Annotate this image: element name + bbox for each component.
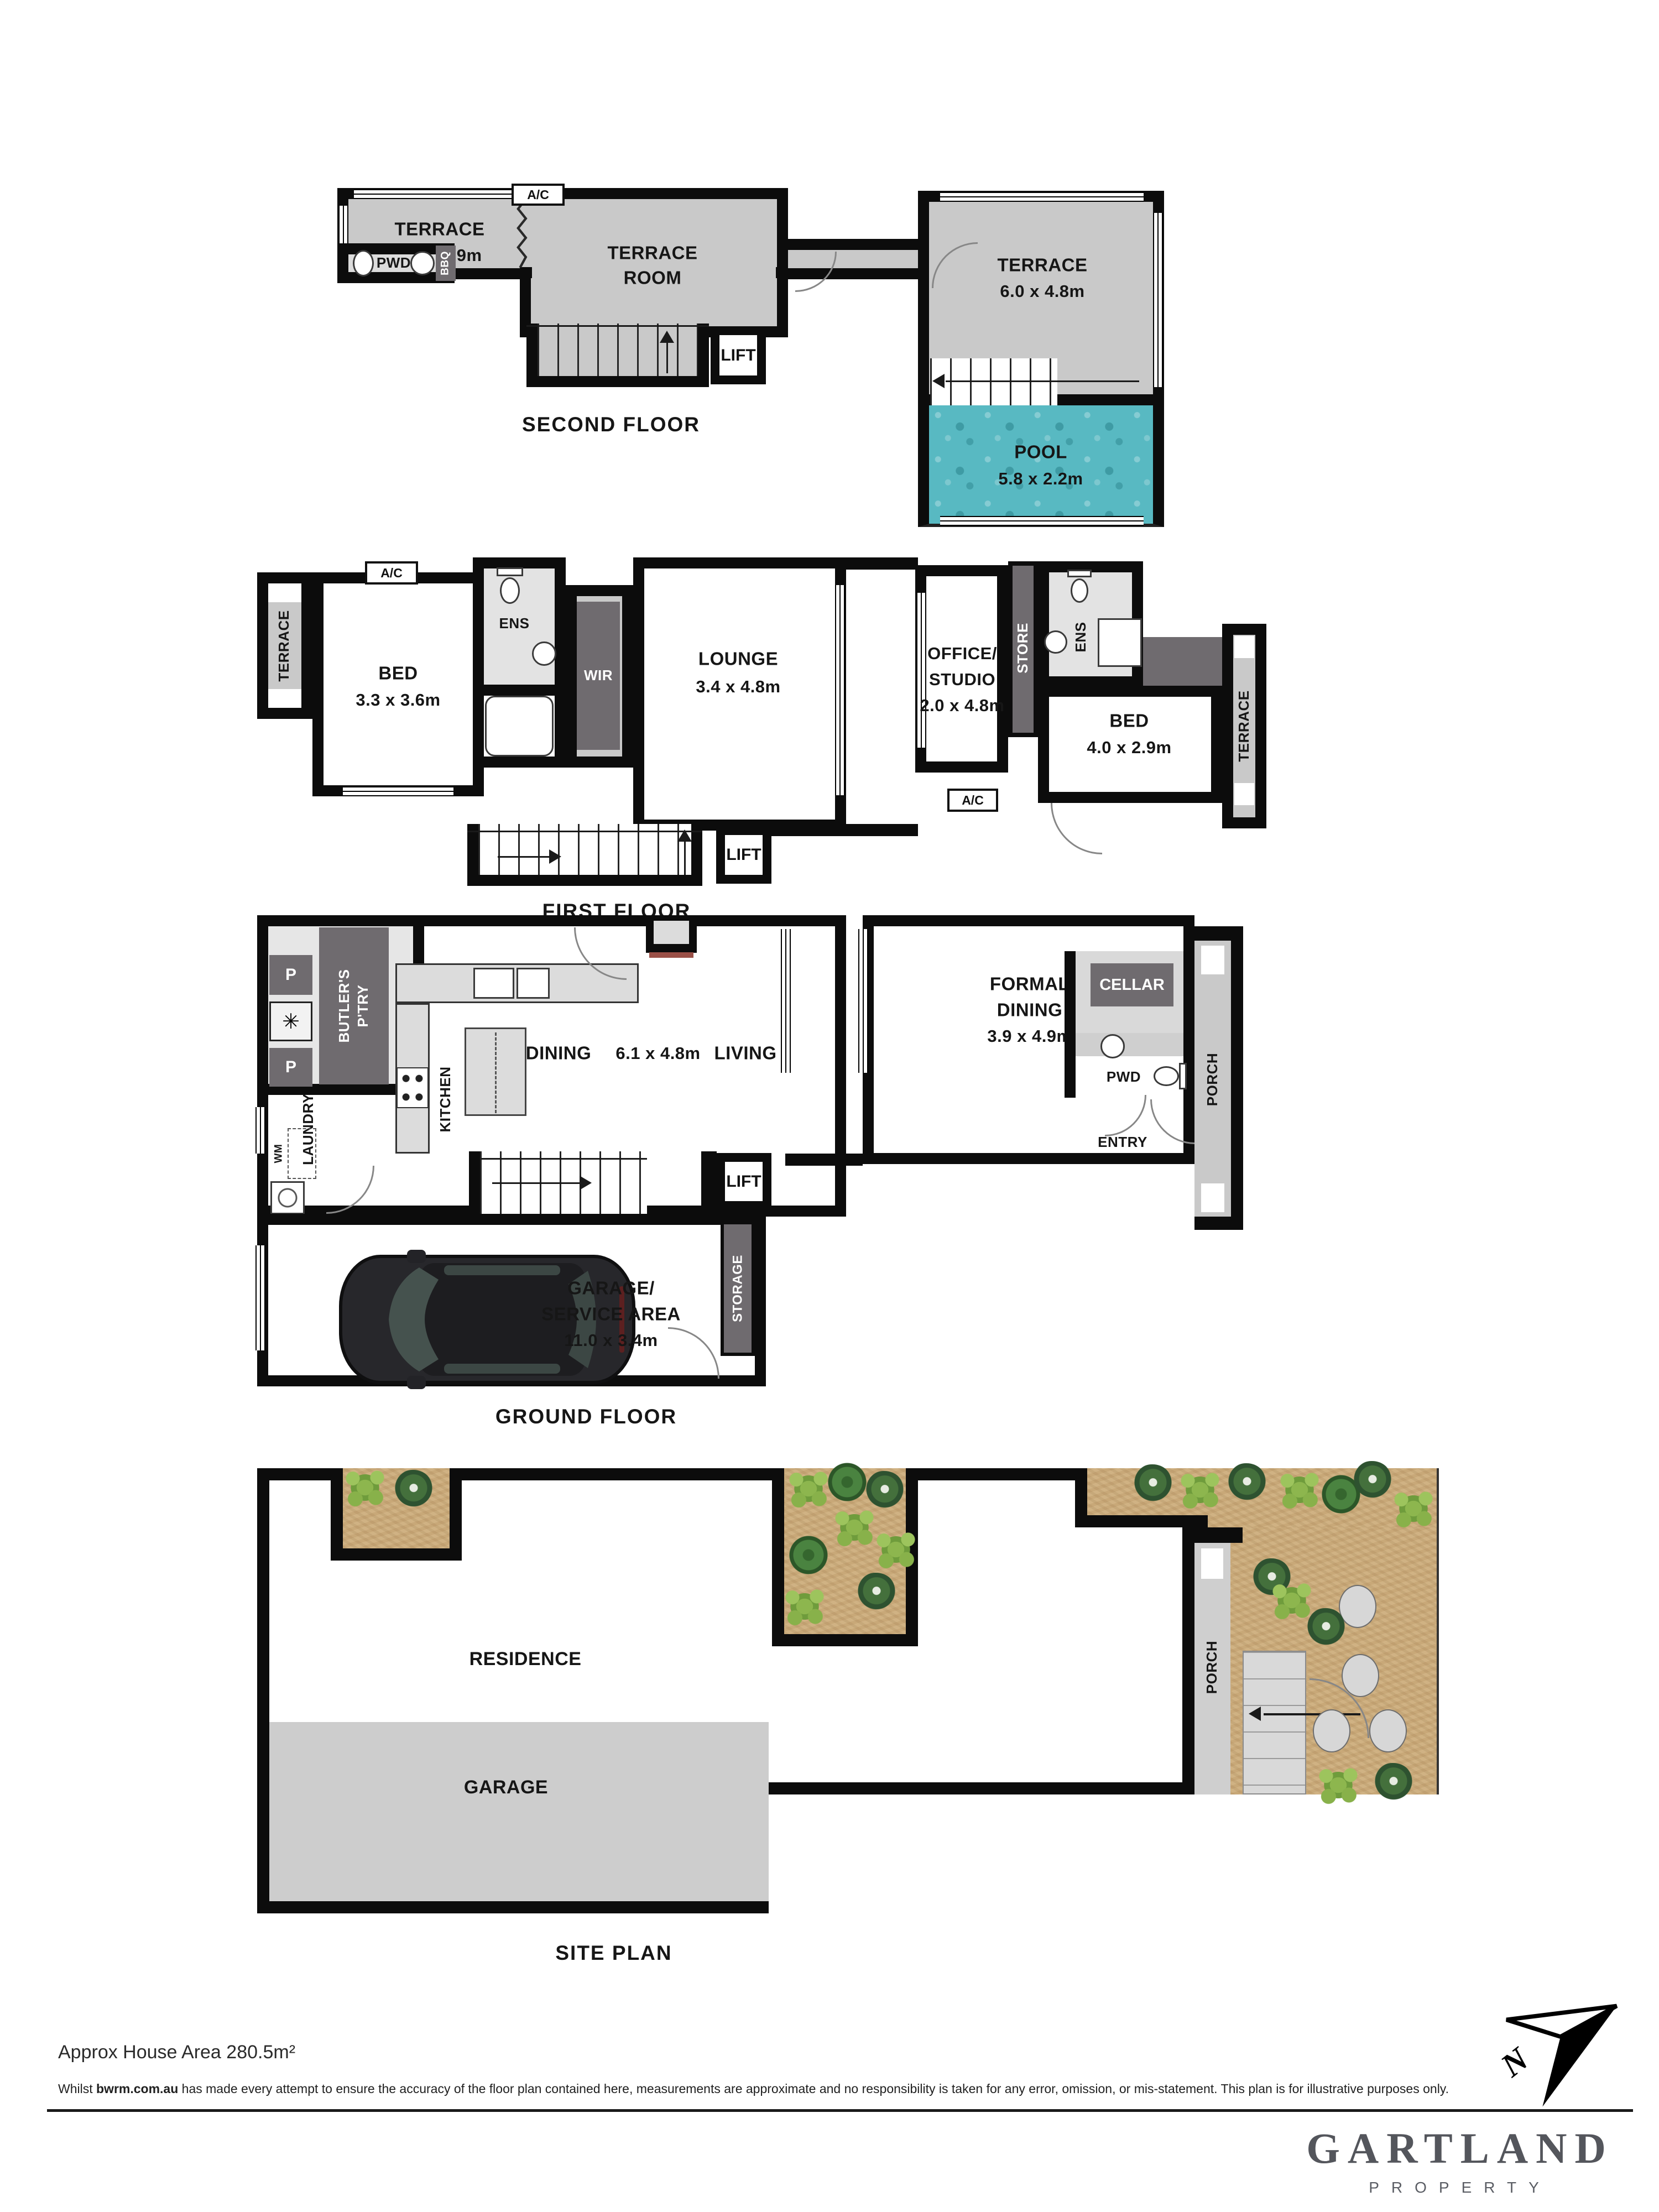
stair-arrow-right-icon (549, 849, 561, 864)
svg-text:N: N (1496, 2039, 1536, 2084)
wm-label: WM (273, 1144, 286, 1164)
toilet-tank-icon (1179, 1063, 1187, 1089)
stair-arrow-line (946, 380, 1139, 382)
fireplace-hearth (649, 952, 693, 958)
window (940, 192, 1144, 202)
plant-icon (857, 1573, 896, 1610)
terrace-notch (268, 689, 301, 708)
site-label-garage: GARAGE (464, 1775, 548, 1799)
wall-segment (772, 1468, 784, 1646)
brand-tagline: PROPERTY (1286, 2179, 1634, 2197)
room-label-storage: STORAGE (729, 1255, 746, 1322)
toilet-icon (500, 577, 520, 604)
wall-segment (701, 1151, 717, 1215)
window (940, 516, 1144, 526)
plant-icon (1314, 1762, 1363, 1808)
dishwasher-box: ✳ (269, 1001, 312, 1041)
footer-divider (47, 2109, 1633, 2112)
washing-machine (288, 1128, 316, 1179)
room-label-lounge: LOUNGE (698, 648, 778, 671)
plant-icon (1176, 1467, 1224, 1512)
lift: LIFT (711, 326, 766, 384)
wall-segment (1065, 951, 1076, 1098)
wall-segment (1075, 1515, 1208, 1527)
ac-unit: A/C (365, 561, 418, 585)
plant-icon (394, 1470, 434, 1507)
room-dims: 6.1 x 4.8m (615, 1042, 700, 1065)
room-dims: 3.3 x 3.6m (356, 689, 440, 711)
plant-icon (1275, 1467, 1324, 1512)
toilet-icon (1154, 1066, 1179, 1086)
plant-icon (872, 1527, 920, 1572)
basin-icon (410, 251, 435, 275)
room-label-store: STORE (1014, 623, 1032, 674)
room-label-terrace-room: TERRACE (607, 242, 697, 265)
pantry-box: P (269, 955, 312, 995)
room-label-terrace-room2: ROOM (624, 267, 682, 290)
lift: LIFT (716, 826, 771, 884)
site-label-residence: RESIDENCE (469, 1647, 582, 1671)
plan-caption: SITE PLAN (555, 1940, 672, 1966)
plant-icon (830, 1505, 879, 1550)
plant-icon (1374, 1763, 1413, 1801)
toilet-tank-icon (497, 567, 523, 576)
room-label-office2: STUDIO (929, 669, 995, 691)
shower-icon (1098, 618, 1142, 667)
room-label-butlers: BUTLER'SP'TRY (335, 969, 373, 1043)
stair-rail (526, 325, 709, 327)
stepping-stone (1342, 1654, 1379, 1697)
room-dims: 6.0 x 4.8m (1000, 280, 1084, 302)
room-label-terrace-left: TERRACE (275, 610, 294, 681)
room-label-terrace: TERRACE (394, 218, 484, 242)
plant-icon (780, 1584, 829, 1629)
room-dims: 4.0 x 2.9m (1087, 737, 1171, 759)
plan-caption: GROUND FLOOR (495, 1404, 677, 1430)
room-label-formal1: FORMAL (990, 973, 1070, 997)
stair-arrow-line (498, 856, 550, 858)
stove-icon (397, 1067, 429, 1108)
porch-notch (1201, 1183, 1224, 1212)
stairs (526, 324, 709, 387)
site-label-porch: PORCH (1203, 1641, 1222, 1694)
stair-arrow-up-icon (660, 331, 674, 343)
porch-notch (1201, 946, 1224, 974)
brand-logo: GARTLAND (1286, 2124, 1634, 2173)
room-dims: 3.9 x 4.9m (987, 1025, 1072, 1047)
room-label-bed2: BED (1109, 709, 1149, 733)
toilet-tank-icon (1067, 570, 1092, 577)
room-label-office1: OFFICE/ (927, 643, 997, 665)
stair-arrow-left-icon (1249, 1707, 1261, 1721)
lift: LIFT (716, 1153, 771, 1210)
pool-label: POOL (1014, 441, 1067, 465)
site-stairs (1243, 1651, 1306, 1794)
plant-icon (787, 1535, 830, 1575)
wall-segment (771, 824, 918, 836)
room-label-ens1: ENS (499, 614, 530, 633)
stair-arrow-line (492, 1182, 581, 1184)
room-dims: 11.0 x 3.4m (564, 1329, 658, 1352)
window (781, 929, 791, 1073)
basin-icon (532, 641, 556, 666)
toilet-icon (1071, 578, 1088, 603)
sink-icon (473, 968, 514, 999)
wall-segment (785, 1154, 863, 1166)
wall-segment (846, 557, 918, 570)
pool (918, 405, 1164, 527)
bbq-label: BBQ (439, 251, 453, 275)
disclaimer-text: Whilst bwrm.com.au has made every attemp… (58, 2081, 1449, 2096)
boundary-line (1437, 1468, 1439, 1794)
stair-arrow-line (684, 842, 686, 875)
basin-icon (1044, 630, 1067, 654)
stepping-stone (1369, 1709, 1407, 1752)
room-label-terrace2: TERRACE (997, 254, 1087, 278)
plan-caption: SECOND FLOOR (522, 411, 700, 438)
stair-arrow-right-icon (580, 1176, 592, 1190)
pool-dims: 5.8 x 2.2m (998, 468, 1083, 490)
door-arc (795, 252, 837, 292)
plant-icon (1306, 1608, 1346, 1646)
stairs (467, 824, 702, 886)
door-arc (1051, 803, 1102, 854)
house-area-text: Approx House Area 280.5m² (58, 2042, 295, 2063)
kitchen-island (465, 1027, 526, 1116)
room-label-porch: PORCH (1203, 1053, 1222, 1106)
room-label-living: LIVING (714, 1042, 776, 1066)
boundary-wall (257, 1468, 269, 1913)
fireplace-inner (654, 921, 689, 944)
window (354, 189, 514, 199)
room-label-formal2: DINING (997, 999, 1063, 1022)
window (255, 1107, 265, 1154)
stair-rail (481, 1158, 647, 1160)
window (858, 929, 868, 1073)
room-label-kitchen: KITCHEN (436, 1066, 455, 1132)
room-label-bed1: BED (378, 662, 418, 686)
wall-segment (1182, 1527, 1243, 1543)
bath-icon (485, 696, 554, 757)
terrace-notch (1234, 636, 1254, 658)
room-label-wir: WIR (584, 666, 613, 685)
plant-icon (865, 1471, 905, 1509)
boundary-wall (257, 1901, 769, 1913)
wall-segment (1194, 1217, 1243, 1230)
room-label-pwd: PWD (377, 254, 411, 273)
glass-zigzag-divider (513, 200, 530, 268)
window (916, 593, 926, 748)
wall-segment (1182, 1527, 1194, 1794)
boundary-wall (769, 1782, 1230, 1794)
stair-arrow-up-icon (677, 830, 692, 842)
stair-rail (467, 831, 702, 832)
pantry-box: P (269, 1048, 312, 1087)
room-label-garage1: GARAGE/ (567, 1277, 655, 1301)
plant-icon (341, 1465, 389, 1510)
room-label-terrace-right: TERRACE (1235, 690, 1254, 761)
plant-icon (1389, 1486, 1438, 1531)
basin-icon (1100, 1034, 1125, 1058)
plant-icon (784, 1466, 833, 1511)
site-garage (269, 1722, 769, 1901)
room-dims: 3.4 x 4.8m (696, 676, 780, 698)
robe-band (1143, 637, 1222, 686)
compass-north-icon: N (1496, 2001, 1623, 2111)
terrace-notch (1234, 783, 1254, 805)
toilet-icon (353, 250, 374, 276)
wall-segment (331, 1548, 462, 1561)
wall-segment (1231, 939, 1243, 1218)
plant-icon (1133, 1464, 1173, 1502)
ac-unit: A/C (947, 789, 998, 812)
plant-icon (1353, 1461, 1392, 1499)
window (1153, 213, 1163, 387)
room-dims: 2.0 x 4.8m (920, 695, 1004, 717)
terrace-notch (268, 583, 301, 602)
island-divider (495, 1032, 497, 1113)
cellar: CELLAR (1091, 963, 1173, 1006)
room-label-pwd: PWD (1107, 1068, 1141, 1087)
laundry-sink-icon (270, 1181, 305, 1214)
window (255, 1245, 265, 1350)
disclaimer-bold: bwrm.com.au (96, 2081, 178, 2096)
room-label-ens2: ENS (1072, 622, 1091, 653)
pwd-counter (1076, 1033, 1183, 1056)
wall-segment (450, 1468, 462, 1561)
stair-arrow-line (666, 343, 668, 373)
window (835, 585, 845, 795)
plant-icon (1227, 1463, 1267, 1501)
porch-notch (1201, 1548, 1223, 1579)
floor-plan-document: A/C TERRACE 4.4 x 2.9m TERRACE ROOM PWD … (0, 0, 1659, 2212)
room-label-dining: DINING (526, 1042, 592, 1066)
wall-segment (772, 1634, 918, 1646)
stepping-stone (1313, 1709, 1350, 1752)
sink-icon (517, 968, 550, 999)
stair-arrow-left-icon (932, 374, 945, 388)
plant-icon (826, 1462, 868, 1502)
room-label-garage2: SERVICE AREA (541, 1303, 681, 1327)
ac-unit: A/C (512, 184, 565, 206)
window (343, 786, 453, 796)
